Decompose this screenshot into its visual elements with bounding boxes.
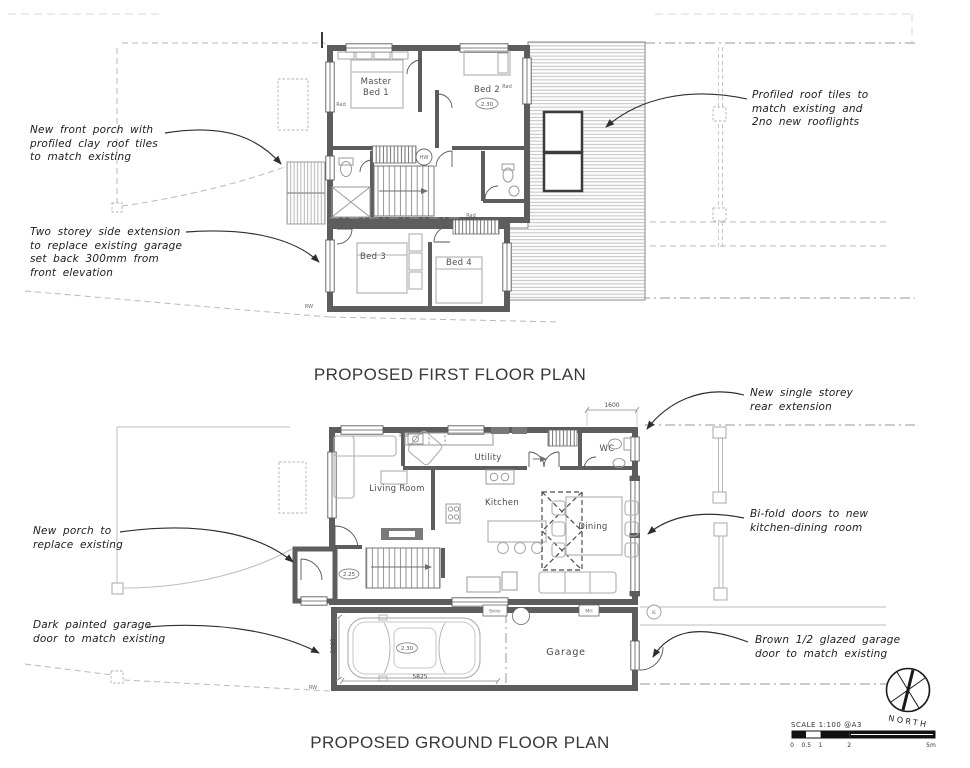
room-label-wc: WC xyxy=(600,444,615,454)
room-label-living: Living Room xyxy=(369,484,424,494)
landing-wardrobe xyxy=(372,146,416,163)
annotation-bifold-doors: Bi-fold doors to new kitchen-dining room xyxy=(750,508,915,535)
hw-label: HW xyxy=(420,155,429,161)
ground-floor-title: PROPOSED GROUND FLOOR PLAN xyxy=(260,733,660,753)
annotation-front-porch: New front porch with profiled clay roof … xyxy=(30,124,205,165)
ie-label: IE xyxy=(652,610,656,615)
room-label-kitchen: Kitchen xyxy=(485,498,519,508)
meter-circle xyxy=(513,608,530,625)
annotation-roof-tiles: Profiled roof tiles to match existing an… xyxy=(752,89,917,130)
scale-tick-1: 1 xyxy=(819,742,823,749)
room-label-bed3: Bed 3 xyxy=(360,252,386,262)
scale-tick-2: 2 xyxy=(847,742,851,749)
scale-tick-05: 0.5 xyxy=(802,742,812,749)
boiler-label: Boiler xyxy=(489,608,501,613)
annotation-garage-door-dark: Dark painted garage door to match existi… xyxy=(33,619,198,646)
room-label-dining: Dining xyxy=(578,522,607,532)
rooflight-2 xyxy=(544,153,582,191)
room-label-bed4: Bed 4 xyxy=(446,258,472,268)
rear-dimension: 1600 xyxy=(604,402,619,409)
scale-tick-0: 0 xyxy=(790,742,794,749)
rw-label: RW xyxy=(309,685,317,691)
front-porch-roof xyxy=(287,162,325,224)
ground-floor-stairs xyxy=(366,548,440,588)
scale-label: SCALE 1:100 @A3 xyxy=(791,721,862,729)
garage-width-dimension: 5825 xyxy=(412,674,427,681)
rad-label: Rad xyxy=(466,213,476,219)
first-floor-title: PROPOSED FIRST FLOOR PLAN xyxy=(250,365,650,385)
garage-door-swing xyxy=(640,647,663,670)
room-label-utility: Utility xyxy=(474,453,501,463)
ground-floor-plan: 2.30 Boiler MH IE 2.25 Rad RW 1600 582 xyxy=(295,402,663,691)
north-arrow-icon: NORTH xyxy=(887,669,930,730)
hall-height-marker: 2.25 xyxy=(343,572,356,578)
annotation-side-extension: Two storey side extension to replace exi… xyxy=(30,226,225,280)
room-label-master: Master xyxy=(361,77,392,87)
bed2-height-marker: 2.30 xyxy=(481,102,494,108)
rad-label: Rad xyxy=(399,433,409,439)
first-floor-plan: HW Master Bed 1 Bed 2 xyxy=(287,42,645,310)
annotation-garage-door-brown: Brown 1/2 glazed garage door to match ex… xyxy=(755,634,940,661)
annotation-new-porch: New porch to replace existing xyxy=(33,525,163,552)
first-floor-stairs: HW xyxy=(372,146,434,216)
garage-depth-dimension: 3065 xyxy=(330,638,337,653)
rad-label: Rad xyxy=(336,102,346,108)
rw-label: RW xyxy=(305,304,313,310)
rooflight-1 xyxy=(544,112,582,152)
garage-side-door xyxy=(631,641,639,670)
annotation-rear-extension: New single storey rear extension xyxy=(750,387,895,414)
room-label-master-2: Bed 1 xyxy=(363,88,389,98)
room-label-bed2: Bed 2 xyxy=(474,85,500,95)
room-label-garage: Garage xyxy=(546,647,586,658)
north-label: NORTH xyxy=(888,714,930,730)
drawing-canvas: HW Master Bed 1 Bed 2 xyxy=(0,0,970,768)
scale-tick-5m: 5m xyxy=(926,742,936,749)
mh-label: MH xyxy=(585,609,592,615)
rad-label: Rad xyxy=(502,84,512,90)
garage-height-marker: 2.30 xyxy=(401,646,414,652)
